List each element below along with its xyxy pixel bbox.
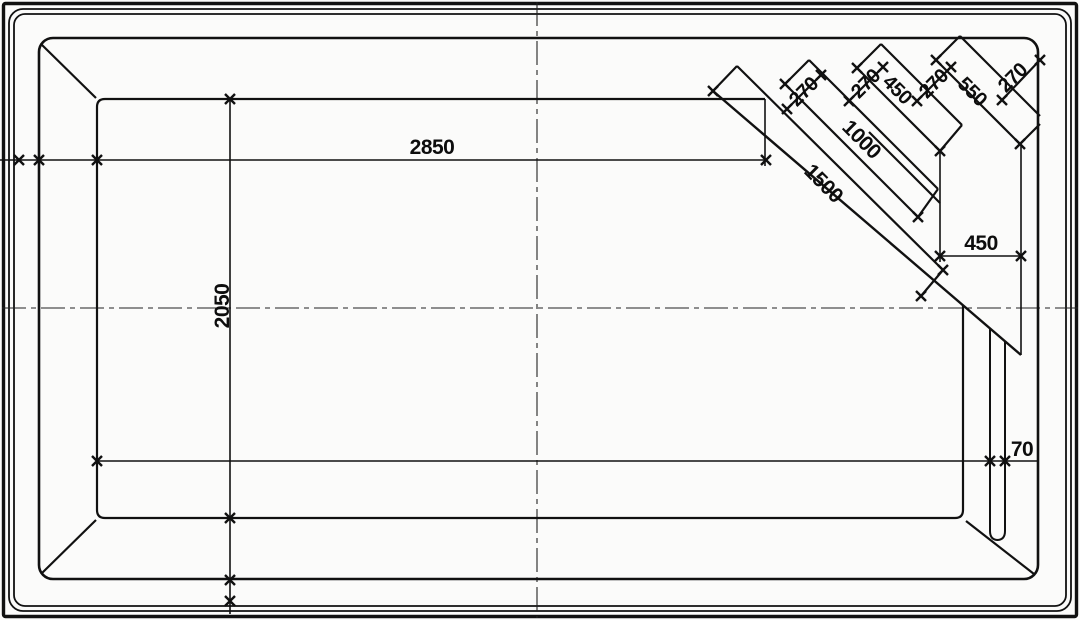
pool-plan-drawing-page: 2850 2050 1500 1000 450 550 270 270 270 … [0, 0, 1080, 620]
dimension-ticks [14, 55, 1045, 606]
ledge-line-left [990, 328, 998, 540]
dim-label-wall-lip: 70 [1011, 438, 1033, 461]
dimension-lines [0, 99, 1038, 614]
dim-label-pool-width: 2050 [211, 284, 234, 329]
corner-chamfer-bottom-left [41, 520, 96, 574]
dim-label-stair-edge-top: 550 [953, 73, 991, 111]
dim-label-stair-side-width: 450 [964, 232, 998, 255]
corner-chamfer-bottom-right [966, 521, 1034, 574]
dim-label-stair-edge-short: 450 [878, 71, 916, 109]
dim-label-stair-tread-4: 270 [994, 59, 1032, 97]
dim-label-stair-edge-mid: 1000 [837, 116, 885, 164]
pool-plan-drawing: 2850 2050 1500 1000 450 550 270 270 270 … [0, 0, 1080, 620]
center-axes [2, 2, 1078, 618]
frame-edge [4, 4, 1077, 617]
ledge-line-right [997, 341, 1005, 540]
stair-dim-band-550 [936, 36, 1040, 144]
corner-chamfer-top-left [41, 44, 96, 98]
dim-label-pool-length: 2850 [410, 136, 455, 159]
border-frame [4, 4, 1077, 617]
